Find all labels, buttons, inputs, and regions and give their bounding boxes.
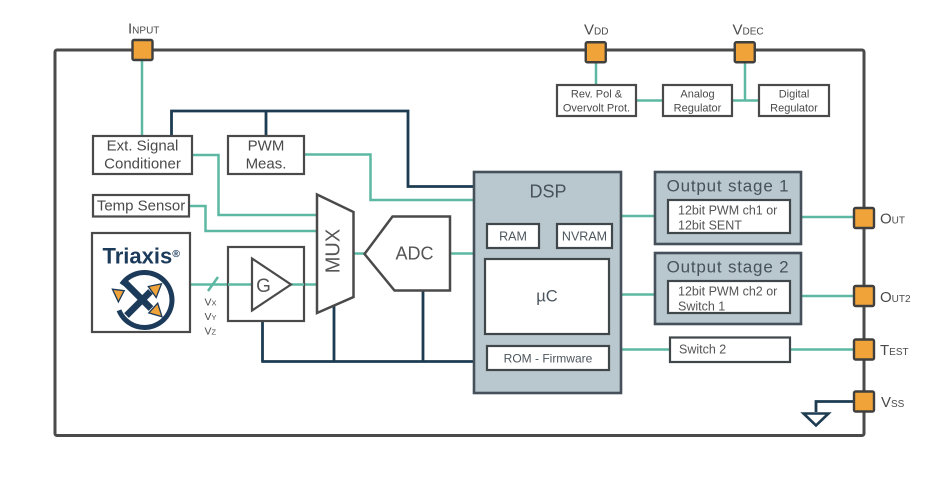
- svg-text:Overvolt Prot.: Overvolt Prot.: [563, 103, 630, 115]
- svg-text:12bit PWM ch1 or: 12bit PWM ch1 or: [678, 204, 777, 218]
- svg-text:PWM: PWM: [248, 138, 285, 155]
- svg-text:NVRAM: NVRAM: [562, 230, 607, 244]
- svg-text:Switch 2: Switch 2: [679, 343, 726, 357]
- svg-text:12bit PWM ch2 or: 12bit PWM ch2 or: [678, 285, 777, 299]
- svg-text:G: G: [256, 276, 271, 297]
- svg-text:Meas.: Meas.: [246, 156, 287, 173]
- svg-text:Analog: Analog: [680, 89, 714, 101]
- svg-text:Temp Sensor: Temp Sensor: [97, 198, 185, 215]
- svg-text:Rev. Pol &: Rev. Pol &: [571, 89, 623, 101]
- svg-text:Switch 1: Switch 1: [678, 300, 725, 314]
- svg-text:µC: µC: [536, 288, 558, 306]
- svg-text:DSP: DSP: [529, 182, 566, 202]
- svg-text:Regulator: Regulator: [770, 103, 818, 115]
- svg-text:MUX: MUX: [323, 229, 345, 273]
- svg-text:Regulator: Regulator: [674, 103, 722, 115]
- svg-text:Triaxis®: Triaxis®: [103, 244, 181, 269]
- svg-text:RAM: RAM: [499, 230, 527, 244]
- svg-text:ADC: ADC: [395, 244, 433, 264]
- svg-text:Output stage 2: Output stage 2: [667, 258, 790, 277]
- svg-text:Digital: Digital: [779, 89, 810, 101]
- svg-text:VZ: VZ: [205, 326, 217, 338]
- svg-text:Ext. Signal: Ext. Signal: [107, 138, 179, 155]
- svg-text:VY: VY: [205, 311, 217, 323]
- svg-text:ROM - Firmware: ROM - Firmware: [504, 352, 593, 366]
- svg-text:12bit SENT: 12bit SENT: [678, 219, 742, 233]
- svg-text:Conditioner: Conditioner: [104, 156, 181, 173]
- svg-text:VX: VX: [205, 297, 217, 309]
- svg-text:Output stage 1: Output stage 1: [667, 177, 790, 196]
